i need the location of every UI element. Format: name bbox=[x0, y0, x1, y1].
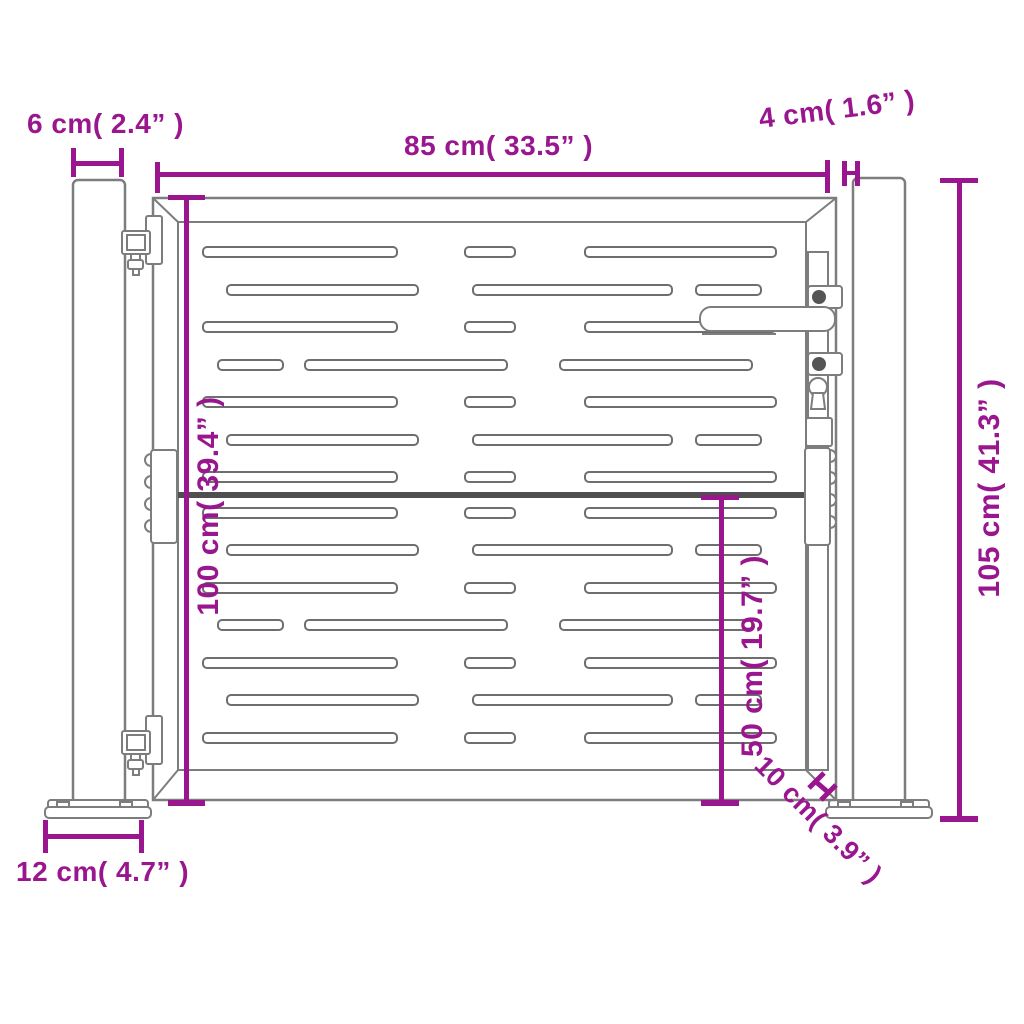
gate-slot bbox=[203, 247, 397, 257]
gate-slot bbox=[473, 285, 672, 295]
dim-label-half-height: 50 cm( 19.7” ) bbox=[736, 555, 771, 757]
gate-slot bbox=[585, 397, 776, 407]
gate-slot bbox=[218, 360, 283, 370]
gate-slot bbox=[465, 397, 515, 407]
gate-slot bbox=[465, 733, 515, 743]
right-post-base-plate bbox=[826, 800, 932, 818]
gate-slot bbox=[465, 322, 515, 332]
gate-slot bbox=[227, 695, 418, 705]
gate-slot bbox=[696, 435, 761, 445]
gate-slot bbox=[305, 620, 507, 630]
dim-line-gate-width bbox=[155, 160, 830, 193]
gate-slot bbox=[560, 360, 752, 370]
gate-slot bbox=[203, 583, 397, 593]
gate-slot bbox=[203, 508, 397, 518]
gate-slot bbox=[203, 397, 397, 407]
gate-slot bbox=[203, 322, 397, 332]
gate-slot bbox=[585, 508, 776, 518]
gate-slot bbox=[227, 435, 418, 445]
dim-label-base-plate: 12 cm( 4.7” ) bbox=[16, 856, 189, 888]
gate-slot bbox=[465, 508, 515, 518]
gate-slot bbox=[227, 285, 418, 295]
gate-slot bbox=[305, 360, 507, 370]
gate-slot bbox=[473, 545, 672, 555]
left-post bbox=[73, 180, 125, 803]
dim-line-post-width bbox=[71, 148, 124, 177]
keyhole-icon bbox=[809, 378, 827, 409]
gate-slot bbox=[465, 583, 515, 593]
gate-slot bbox=[696, 545, 761, 555]
left-post-base-plate bbox=[45, 800, 151, 818]
gate-slot bbox=[465, 472, 515, 482]
gate-slot bbox=[465, 658, 515, 668]
gate-slot bbox=[473, 695, 672, 705]
dim-label-total-height: 105 cm( 41.3” ) bbox=[973, 378, 1008, 597]
dim-line-post-gap bbox=[842, 161, 860, 186]
dim-label-gate-height: 100 cm( 39.4” ) bbox=[192, 396, 227, 615]
gate-slot bbox=[696, 285, 761, 295]
dim-label-post-width: 6 cm( 2.4” ) bbox=[27, 108, 184, 140]
gate-slot bbox=[465, 247, 515, 257]
gate-slot bbox=[218, 620, 283, 630]
right-post bbox=[853, 178, 905, 803]
gate-slot bbox=[227, 545, 418, 555]
gate-slot bbox=[473, 435, 672, 445]
dimension-diagram: 6 cm( 2.4” ) 85 cm( 33.5” ) 4 cm( 1.6” )… bbox=[0, 0, 1024, 1024]
dim-label-gate-width: 85 cm( 33.5” ) bbox=[404, 130, 593, 162]
gate-slot bbox=[203, 658, 397, 668]
gate-slot bbox=[203, 472, 397, 482]
dim-line-base-plate bbox=[43, 820, 144, 853]
gate-slot bbox=[585, 247, 776, 257]
hinge-middle-plate bbox=[145, 450, 177, 543]
gate-slot bbox=[585, 472, 776, 482]
gate-slot bbox=[203, 733, 397, 743]
